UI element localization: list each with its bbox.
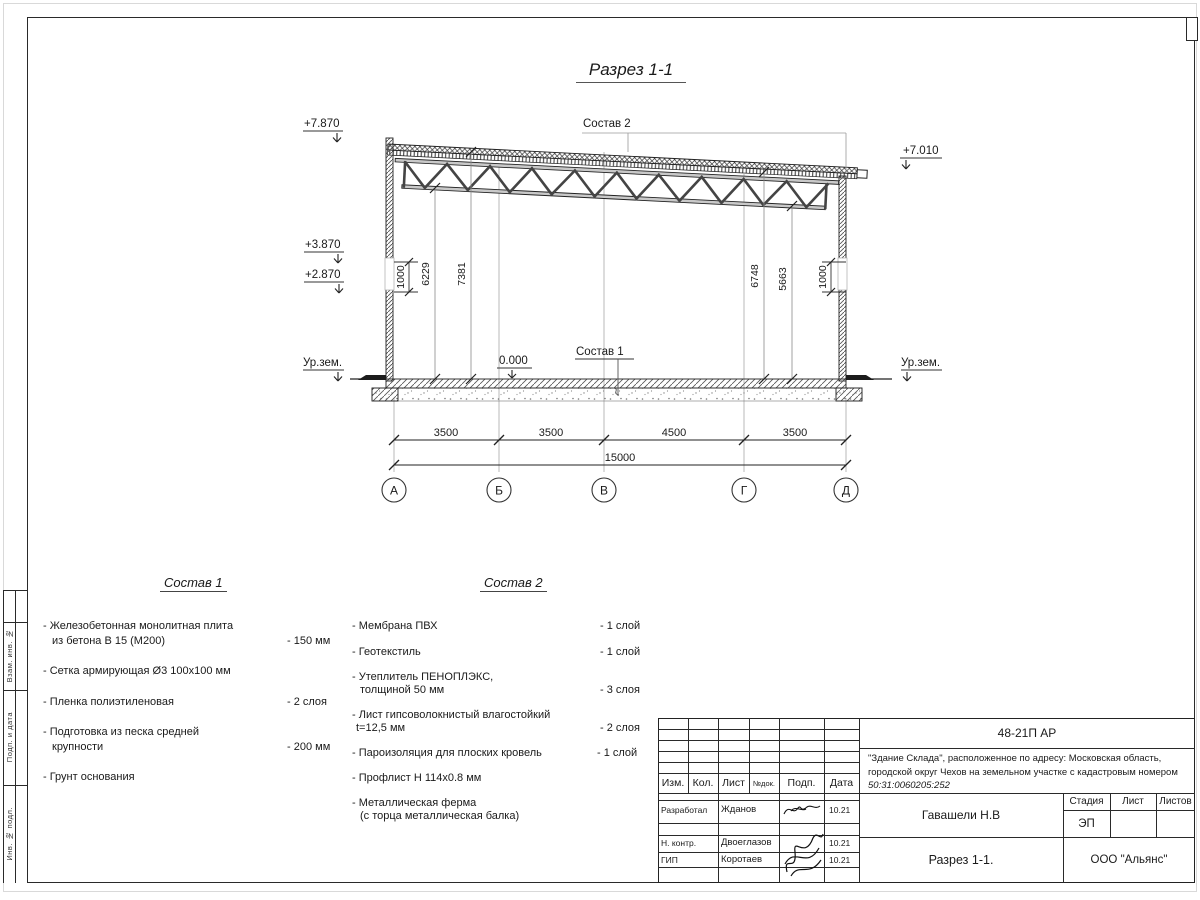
list-item: - Подготовка из песка средней bbox=[43, 726, 199, 739]
list-value: - 1 слой bbox=[600, 620, 640, 633]
date-3: 10.21 bbox=[829, 855, 850, 865]
elev-label: 0.000 bbox=[499, 355, 528, 367]
name-korotaev: Коротаев bbox=[721, 854, 762, 865]
col-list: Лист bbox=[718, 774, 749, 792]
list-item: - Металлическая ферма bbox=[352, 797, 476, 810]
col-kol: Кол. bbox=[688, 774, 718, 792]
elev-label: +2.870 bbox=[305, 269, 341, 281]
dim-label-1000-left: 1000 bbox=[395, 265, 407, 289]
doc-number: 48-21П АР bbox=[859, 718, 1195, 748]
list-value: - 1 слой bbox=[597, 747, 637, 760]
dim-label-1000-right: 1000 bbox=[817, 265, 829, 289]
ground-mark-right: Ур.зем. bbox=[901, 357, 942, 381]
footing-wing-left bbox=[358, 375, 386, 380]
footing-wing-right bbox=[846, 375, 874, 380]
author-name: Гавашели Н.В bbox=[859, 793, 1063, 837]
right-wall-band bbox=[838, 258, 847, 290]
list-item: - Утеплитель ПЕНОПЛЭКС, bbox=[352, 671, 493, 684]
date-1: 10.21 bbox=[829, 805, 850, 815]
role-nkontr: Н. контр. bbox=[661, 838, 696, 848]
elev-7010: +7.010 bbox=[900, 145, 942, 169]
sheets-label: Листов bbox=[1156, 793, 1195, 810]
list-value: - 200 мм bbox=[287, 741, 330, 754]
list-item: - Пароизоляция для плоских кровель bbox=[352, 747, 542, 760]
dim-label-5663: 5663 bbox=[777, 267, 789, 291]
role-razrabotal: Разработал bbox=[661, 805, 707, 815]
concrete-slab bbox=[386, 379, 846, 388]
truss-end-post bbox=[404, 161, 405, 188]
cadastral-number: 50:31:0060205:252 bbox=[868, 780, 950, 791]
drawing-title-cell: Разрез 1-1. bbox=[859, 837, 1063, 883]
project-line3: номером bbox=[1138, 767, 1177, 778]
stage-label: Стадия bbox=[1063, 793, 1110, 810]
axis-bubbles: А Б В Г Д bbox=[382, 478, 858, 502]
floor-callout-label: Состав 1 bbox=[576, 346, 624, 358]
dim-3500-2: 3500 bbox=[539, 427, 563, 439]
axis-g: Г bbox=[741, 484, 748, 498]
grid-lines bbox=[394, 152, 846, 472]
list-item: - Сетка армирующая Ø3 100х100 мм bbox=[43, 665, 231, 678]
role-gip: ГИП bbox=[661, 855, 678, 865]
list-item: из бетона В 15 (М200) bbox=[52, 635, 165, 648]
project-line1: "Здание Склада", расположенное по адресу… bbox=[868, 753, 1161, 764]
list-value: - 2 слоя bbox=[287, 696, 327, 709]
list-item: - Геотекстиль bbox=[352, 646, 421, 659]
project-line2: городской округ Чехов на земельном участ… bbox=[868, 767, 1136, 778]
list-item: t=12,5 мм bbox=[356, 722, 405, 735]
col-izm: Изм. bbox=[658, 774, 688, 792]
truss-end-post bbox=[825, 183, 826, 209]
list-item: крупности bbox=[52, 741, 103, 754]
axis-d: Д bbox=[842, 484, 850, 498]
slab-corner-left bbox=[372, 388, 398, 401]
elev-label: Ур.зем. bbox=[901, 357, 940, 369]
stage-value: ЭП bbox=[1063, 810, 1110, 837]
roof-callout-label: Состав 2 bbox=[583, 118, 631, 130]
dim-3500-1: 3500 bbox=[434, 427, 458, 439]
col-data: Дата bbox=[824, 774, 859, 792]
name-zhdanov: Жданов bbox=[721, 804, 756, 815]
list-item: (с торца металлическая балка) bbox=[360, 810, 519, 823]
company-name: ООО "Альянс" bbox=[1063, 837, 1195, 883]
dim-3500-3: 3500 bbox=[783, 427, 807, 439]
elev-label: Ур.зем. bbox=[303, 357, 342, 369]
ground-mark-left: Ур.зем. bbox=[303, 357, 344, 381]
list-value: - 1 слой bbox=[600, 646, 640, 659]
roof-assembly bbox=[386, 144, 868, 212]
list-item: - Грунт основания bbox=[43, 771, 135, 784]
sheet-label: Лист bbox=[1110, 793, 1156, 810]
dim-15000: 15000 bbox=[605, 452, 636, 464]
sostav2-title: Состав 2 bbox=[480, 576, 547, 592]
axis-a: А bbox=[390, 484, 398, 498]
list-item: - Мембрана ПВХ bbox=[352, 620, 437, 633]
drawing-sheet: Взам. инв. № Подп. и дата Инв. № подл. Р… bbox=[0, 0, 1200, 900]
elev-7870: +7.870 bbox=[303, 118, 343, 142]
beam-end-plate bbox=[857, 170, 867, 178]
dim-label-6229: 6229 bbox=[420, 262, 432, 286]
list-item: толщиной 50 мм bbox=[360, 684, 444, 697]
dim-4500: 4500 bbox=[662, 427, 686, 439]
sostav1-title: Состав 1 bbox=[160, 576, 227, 592]
date-2: 10.21 bbox=[829, 838, 850, 848]
elev-label: +7.010 bbox=[903, 145, 939, 157]
horizontal-dimensions: 3500 3500 4500 3500 15000 bbox=[389, 427, 851, 470]
col-ndok: №док. bbox=[749, 774, 779, 792]
axis-b: Б bbox=[495, 484, 503, 498]
elev-0000: 0.000 bbox=[497, 355, 532, 378]
list-value: - 150 мм bbox=[287, 635, 330, 648]
name-dvoeglazov: Двоеглазов bbox=[721, 837, 772, 848]
elev-label: +3.870 bbox=[305, 239, 341, 251]
signature-zhdanov bbox=[781, 799, 823, 821]
list-value: - 3 слоя bbox=[600, 684, 640, 697]
signature-korotaev bbox=[779, 826, 827, 881]
elev-label: +7.870 bbox=[304, 118, 340, 130]
axis-v: В bbox=[600, 484, 608, 498]
project-description: "Здание Склада", расположенное по адресу… bbox=[868, 752, 1190, 793]
elev-3870: +3.870 bbox=[304, 239, 344, 263]
col-podp: Подп. bbox=[779, 774, 824, 792]
list-value: - 2 слоя bbox=[600, 722, 640, 735]
left-wall-band bbox=[385, 258, 394, 290]
dim-label-7381: 7381 bbox=[456, 262, 468, 286]
elev-2870: +2.870 bbox=[304, 269, 344, 293]
list-item: - Профлист Н 114х0.8 мм bbox=[352, 772, 481, 785]
list-item: - Пленка полиэтиленовая bbox=[43, 696, 174, 709]
list-item: - Железобетонная монолитная плита bbox=[43, 620, 233, 633]
slab-corner-right bbox=[836, 388, 862, 401]
list-item: - Лист гипсоволокнистый влагостойкий bbox=[352, 709, 550, 722]
dim-label-6748: 6748 bbox=[749, 264, 761, 288]
floor bbox=[350, 375, 892, 401]
